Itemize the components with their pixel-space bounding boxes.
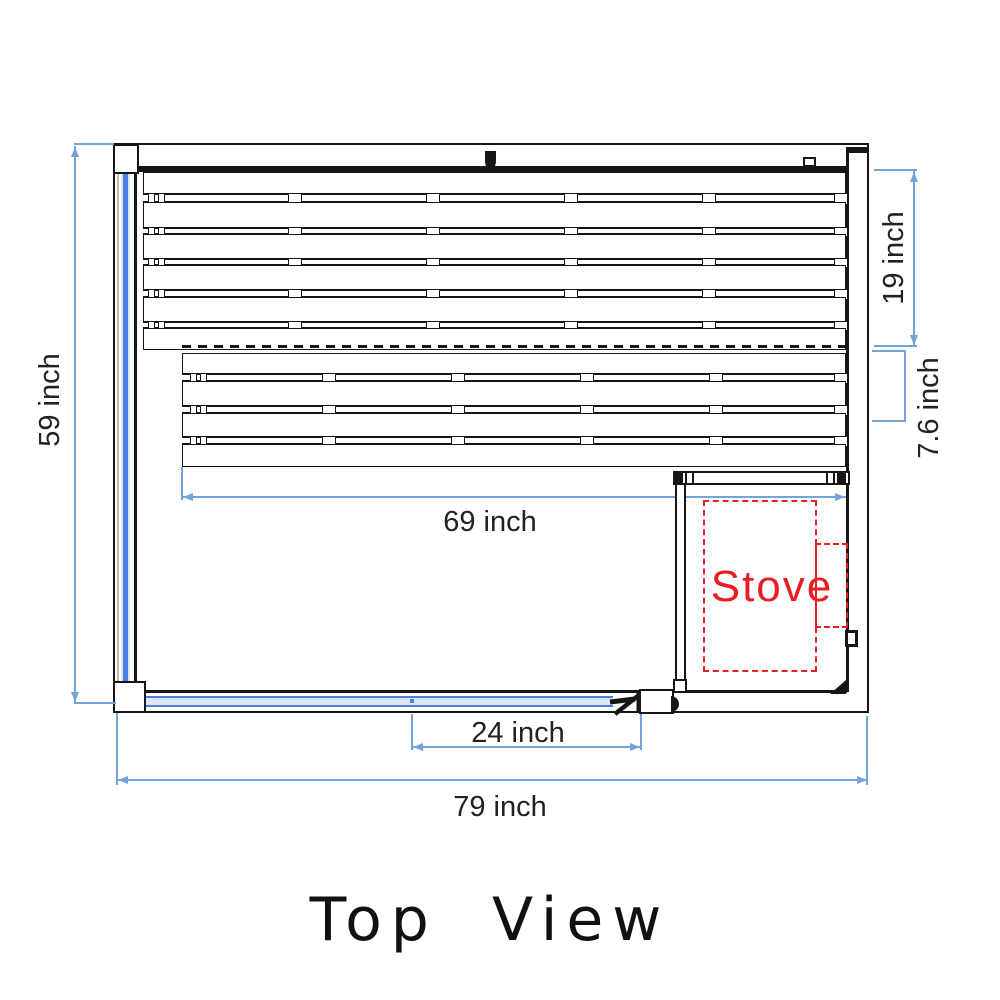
door-edge-marker <box>410 699 414 703</box>
left-wall-wood-line <box>117 172 119 683</box>
left-wall-glass-panel <box>121 174 130 682</box>
dim-59-tick-bottom <box>74 702 116 704</box>
dim-7-6-tick-top <box>872 350 906 352</box>
dim-59-arrow-top <box>71 147 79 157</box>
bench-clip-row <box>182 437 846 444</box>
dim-24-arrow-left <box>413 743 423 751</box>
dim-69-label: 69 inch <box>400 505 580 539</box>
dim-59-tick-top <box>74 143 114 145</box>
door-post <box>639 689 674 714</box>
dim-79-arrow-left <box>118 776 128 784</box>
rail-clip <box>837 471 846 485</box>
bench-hidden-edge-dashed-line <box>182 345 846 348</box>
top-wall-vent-mark <box>485 151 496 170</box>
upper-bench <box>143 172 846 350</box>
page-title: Top View <box>270 880 710 960</box>
dim-79-arrow-right <box>857 776 867 784</box>
dim-24-arrow-right <box>630 743 640 751</box>
right-wall-top-cap <box>846 147 868 153</box>
dim-19-tick-bottom <box>874 345 917 347</box>
right-wall-bracket <box>845 630 858 647</box>
left-wall-inner-edge <box>134 172 137 683</box>
dim-79-label: 79 inch <box>410 790 590 824</box>
dim-24-label: 24 inch <box>428 716 608 750</box>
dim-69-arrow-right <box>835 493 845 501</box>
dim-59-label: 59 inch <box>33 325 67 475</box>
bench-clip-row <box>143 194 846 202</box>
bench-clip-row <box>143 290 846 297</box>
bench-plank <box>143 265 846 290</box>
bench-plank <box>143 234 846 259</box>
bench-plank <box>143 172 846 194</box>
dim-7-6-label: 7.6 inch <box>912 333 946 483</box>
dim-19-arrow-top <box>910 172 918 182</box>
bench-clip-row <box>182 406 846 413</box>
bench-plank <box>182 413 846 437</box>
stove-label: Stove <box>672 564 872 610</box>
dim-79-line <box>117 779 868 781</box>
dim-69-arrow-left <box>183 493 193 501</box>
dim-79-tick-left <box>116 713 118 785</box>
dim-19-line <box>913 170 915 347</box>
corner-post-top-left <box>113 144 139 174</box>
dim-19-tick-top <box>874 169 917 171</box>
bench-plank <box>143 297 846 322</box>
bench-plank <box>182 381 846 406</box>
dim-59-arrow-bottom <box>71 692 79 702</box>
stove-partition-foot <box>673 679 687 693</box>
lower-bench <box>182 353 846 467</box>
dim-59-line <box>74 146 76 703</box>
corner-post-bottom-left <box>113 681 146 713</box>
bench-plank <box>182 353 846 374</box>
bench-clip-row <box>182 374 846 381</box>
corner-mark-triangle <box>830 680 846 694</box>
dim-19-label: 19 inch <box>877 183 911 333</box>
dim-24-tick-right <box>640 714 642 750</box>
bench-plank <box>143 202 846 228</box>
rail-clip <box>685 471 694 485</box>
front-glass-panel <box>145 696 613 707</box>
dim-69-line <box>182 496 846 498</box>
top-wall-sensor-notch <box>803 157 816 167</box>
sauna-top-view-plan: 69 inch Stove 59 inch 19 inch 7.6 inch <box>0 0 1000 1000</box>
bench-plank <box>182 444 846 467</box>
dim-7-6-tick-bottom <box>872 420 906 422</box>
stove-guard-rail <box>673 471 850 485</box>
bottom-wall-inner-edge <box>137 690 847 693</box>
rail-clip <box>826 471 835 485</box>
dim-7-6-line <box>904 351 906 422</box>
rail-clip <box>674 471 683 485</box>
